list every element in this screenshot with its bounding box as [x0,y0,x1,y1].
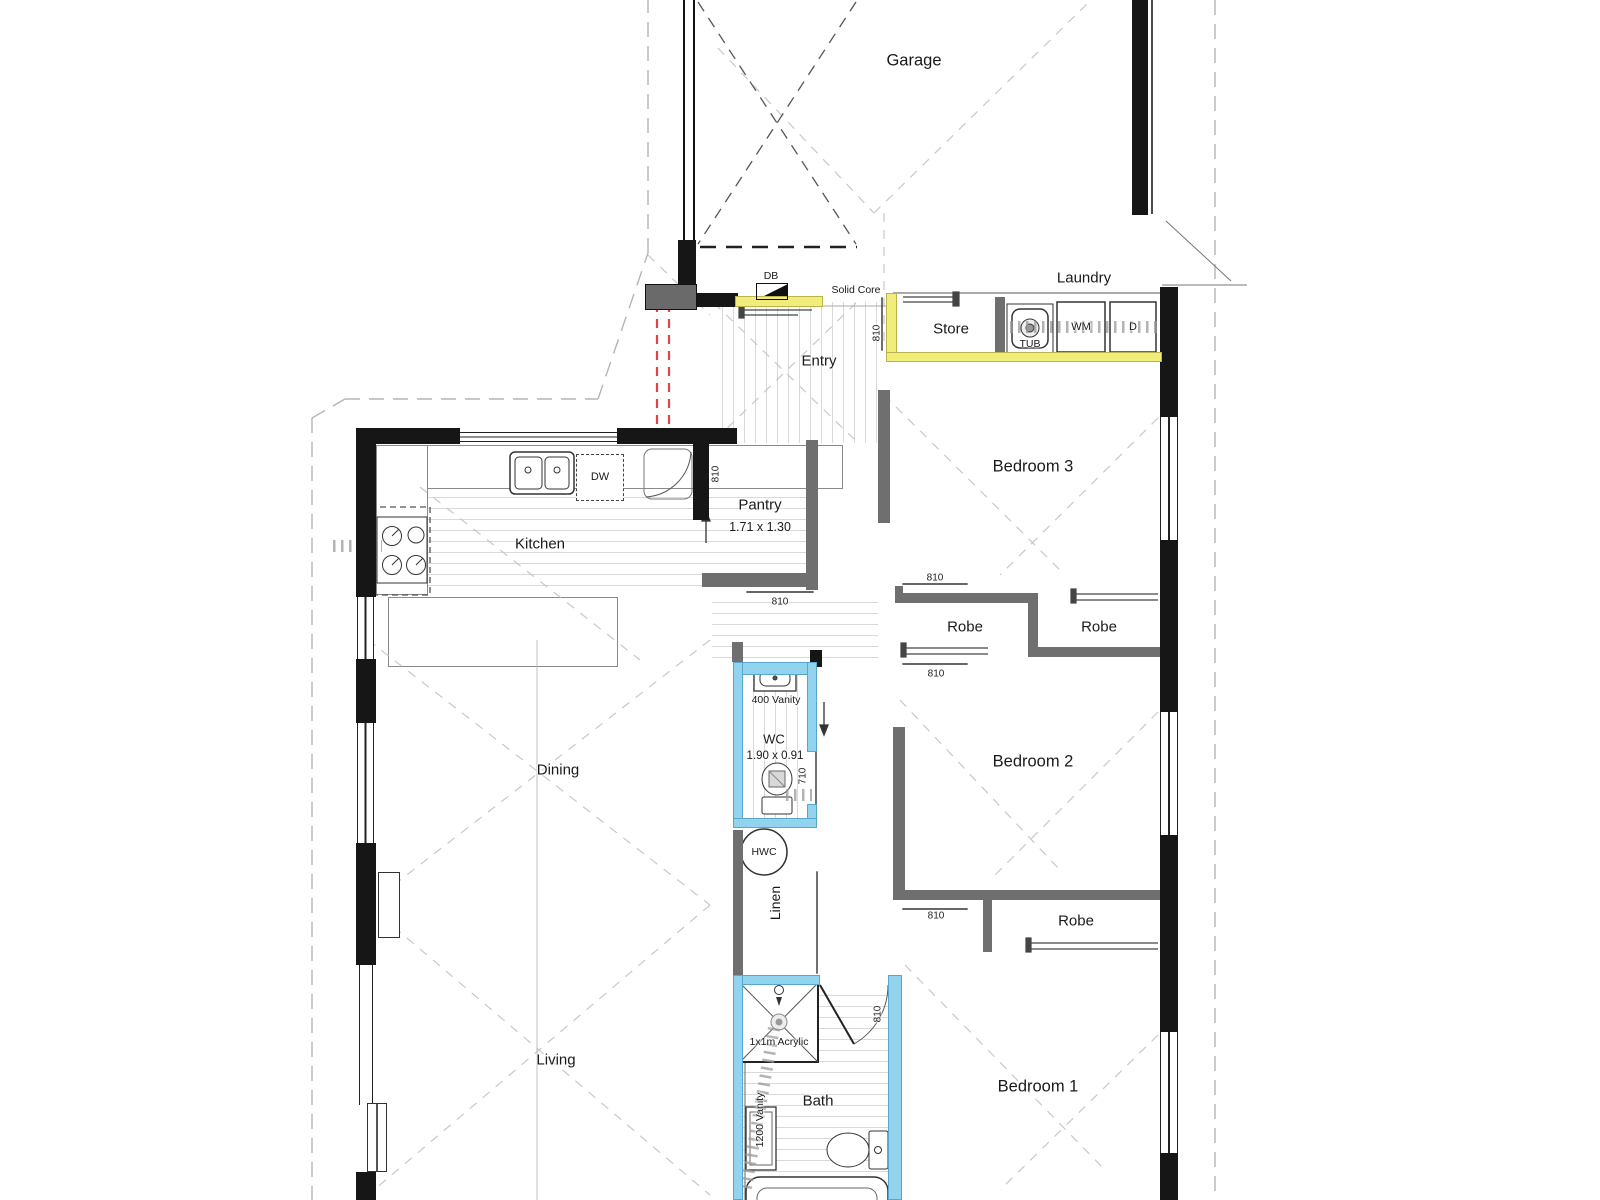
kitchen-top-wall-left [356,428,460,444]
door-tag-hall: 810 [772,597,789,608]
bedroom3-label: Bedroom 3 [993,458,1074,477]
west-wall-1 [356,444,376,597]
bath-toilet [827,1131,888,1169]
shower-label: 1x1m Acrylic [750,1036,809,1048]
door-tag-entry-store: 810 [872,325,883,342]
living-window-sash [367,1103,387,1172]
wc-vanity-label: 400 Vanity [752,694,801,706]
garage-junction-block [645,284,697,310]
wc-left-wall [733,662,743,828]
bedroom2-window [1160,712,1178,835]
dryer-label: D [1129,321,1137,333]
garage-left-wall [683,0,695,245]
b3ath-label bath-label: Bath [803,1093,834,1110]
linen-label: Linen [767,886,783,920]
dw-label: DW [591,471,609,483]
bedroom3-left-wall [878,390,890,523]
door-tag-bedroom2: 810 [928,669,945,680]
dining-label: Dining [537,762,580,779]
bedroom1-label: Bedroom 1 [998,1078,1079,1097]
entry-label: Entry [801,353,836,370]
robe-mid-wall [1028,593,1038,655]
hwc-label: HWC [751,846,776,858]
cooktop [370,507,430,595]
entry-north-wall [694,293,738,307]
shower-fixture [740,983,818,1062]
wc-right-wall-upper [807,662,817,752]
door-tag-wc: 710 [798,768,809,785]
bedroom1-window [1160,1032,1178,1153]
bath-right-wall [888,975,902,1200]
pantry-left-wall [693,444,709,520]
wc-dims: 1.90 x 0.91 [747,750,804,762]
west-wall-3 [356,843,376,965]
linen-left-wall [733,830,743,976]
pantry-right-wall [806,440,818,590]
laundry-tub-stub [995,297,1005,353]
pantry-dims: 1.71 x 1.30 [729,520,791,534]
bedroom2-bottom-wall [903,890,1160,900]
db-label: DB [764,270,779,282]
kitchen-window [460,432,617,442]
tub-label: TUB [1020,338,1041,350]
door-leaf-lines [747,298,967,973]
kitchen-top-wall-right [617,428,737,444]
side-door-landing [1162,221,1247,285]
robe-bed3-right-label: Robe [1081,619,1117,636]
robe-bed3-left-label: Robe [947,619,983,636]
door-tag-pantry: 810 [711,466,722,483]
bathtub [746,1177,888,1200]
wm-label: WM [1071,321,1091,333]
db-box [756,283,788,300]
robe-bed2-stub [983,898,992,952]
wc-top-left-stub [732,642,743,662]
fridge-space [644,449,692,499]
bedroom2-left-wall [893,727,905,900]
robe-bed2-label: Robe [1058,913,1094,930]
floor-plan: Garage Laundry Store Entry Kitchen Pantr… [0,0,1600,1200]
bedroom3-window [1160,417,1178,540]
kitchen-sink [510,452,574,494]
pantry-label: Pantry [738,497,781,514]
robe-cap [895,586,903,603]
east-wall-3 [1160,835,1178,1032]
wc-label: WC [763,732,785,747]
alert-dashed-lines [657,303,669,440]
garage-right-wall [1132,0,1148,215]
door-tag-bath: 810 [873,1006,884,1023]
dining-niche [378,872,400,938]
bath-top-wall [733,975,820,985]
plan-linework [0,0,1600,1200]
pantry-bottom-wall [702,573,818,587]
store-label: Store [933,321,969,338]
kitchen-label: Kitchen [515,536,565,553]
fire-wall-laundry [886,352,1162,362]
west-wall-2 [356,659,376,723]
west-window-1 [357,597,374,659]
solid-core-label: Solid Core [831,284,880,296]
bath-left-wall [733,975,743,1200]
bath-vanity-label: 1200 Vanity [754,1093,766,1148]
east-wall-1 [1160,287,1178,417]
west-sliding-door [359,965,373,1105]
wc-bottom-wall [733,818,817,828]
west-window-2 [357,723,374,843]
robe-top-wall [902,593,1037,603]
door-tag-bedroom3: 810 [927,573,944,584]
door-tag-bedroom1: 810 [928,911,945,922]
garage-door-graphics [698,0,1152,247]
bedroom2-label: Bedroom 2 [993,753,1074,772]
wc-top-wall [733,662,817,675]
east-wall-4 [1160,1153,1178,1200]
robe-bottom-wall [1028,647,1160,657]
living-label: Living [536,1052,575,1069]
west-wall-4 [356,1172,376,1200]
laundry-label: Laundry [1057,270,1111,287]
garage-label: Garage [886,52,941,71]
east-wall-2 [1160,540,1178,712]
wc-toilet [762,763,792,814]
